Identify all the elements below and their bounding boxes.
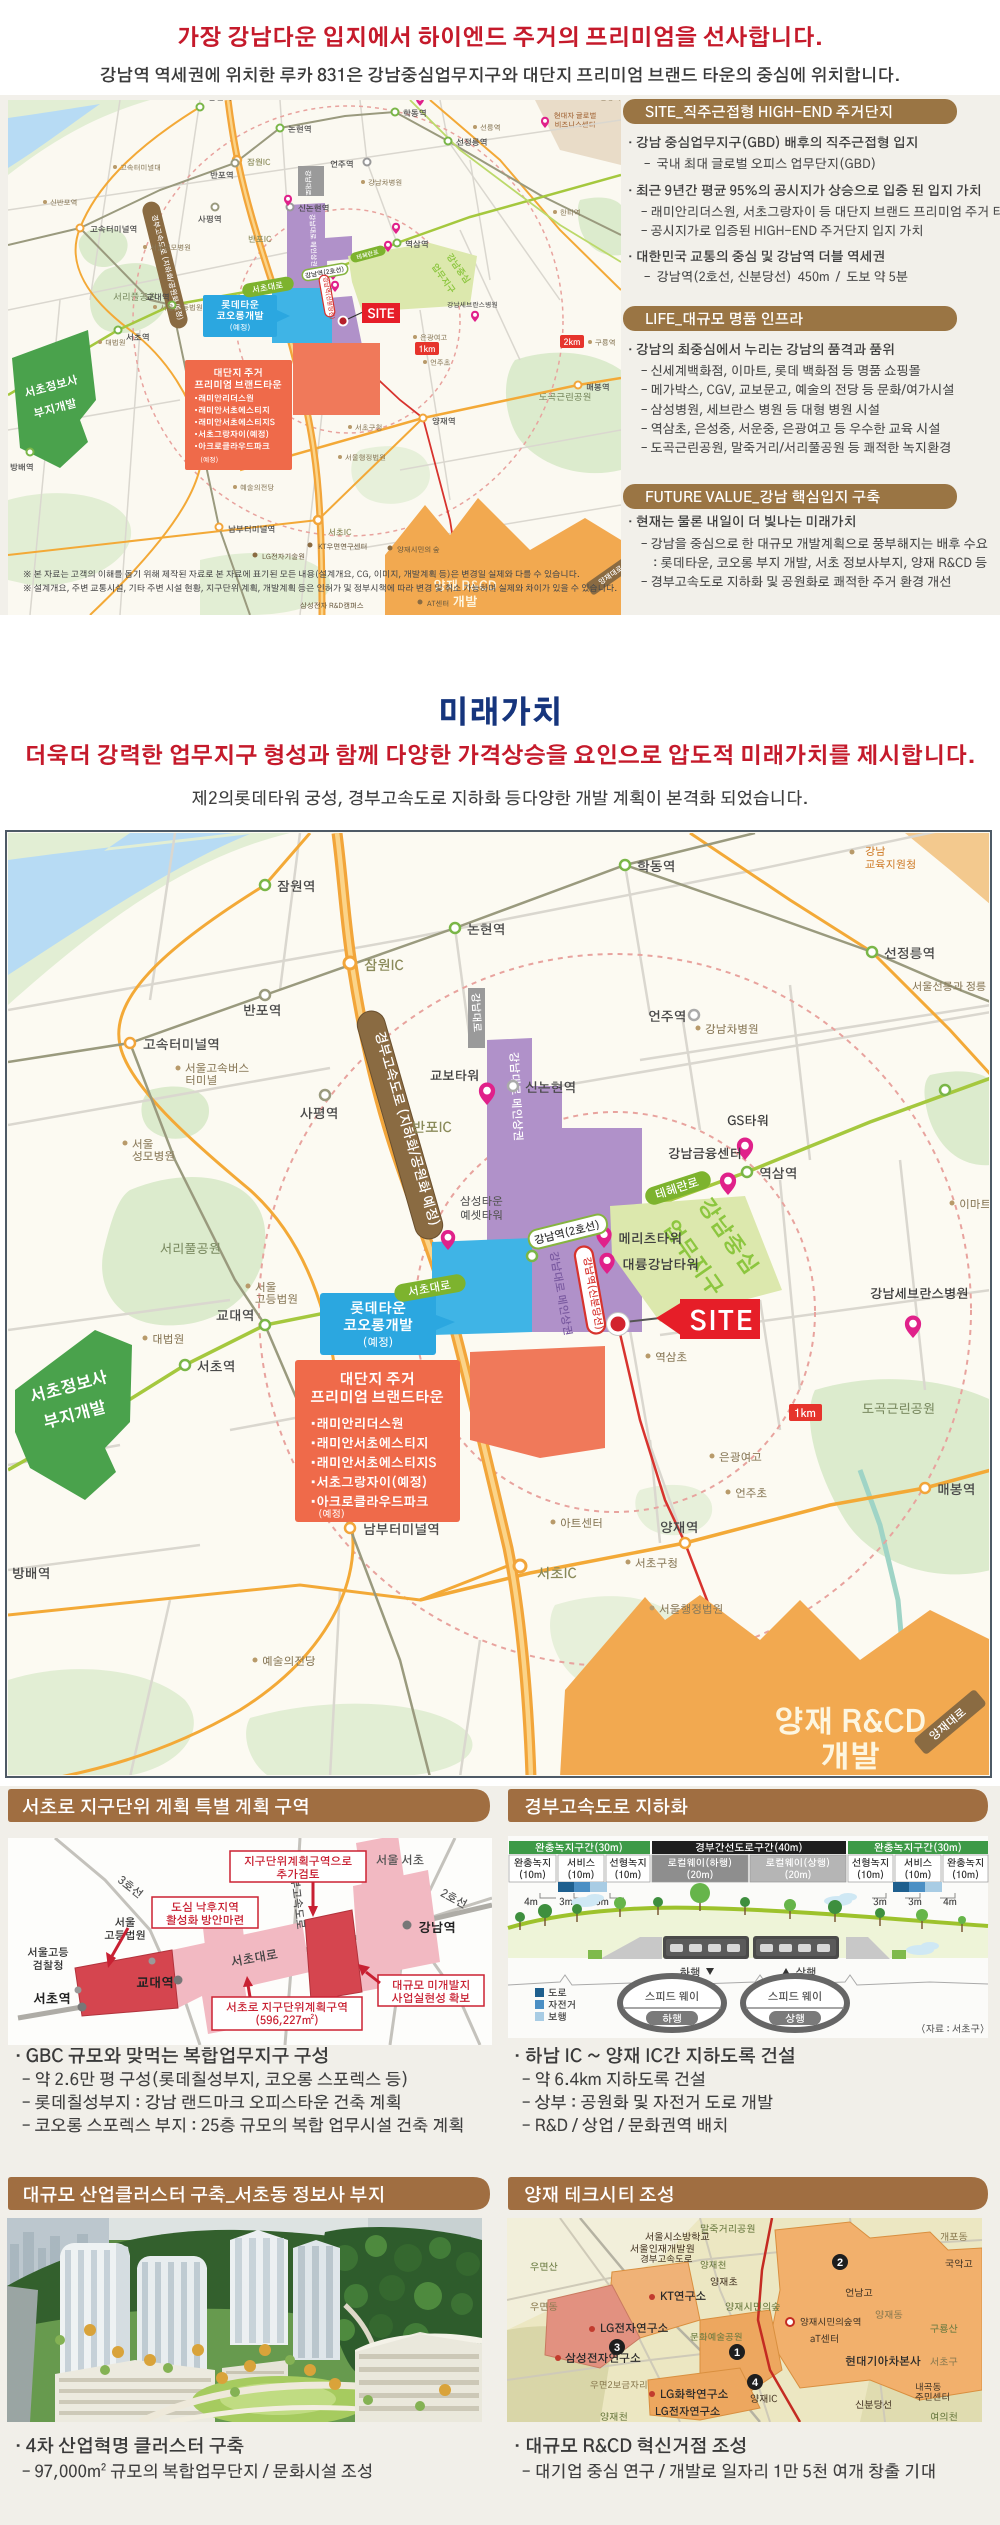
svg-text:4: 4 (752, 2377, 759, 2389)
svg-text:1: 1 (734, 2347, 740, 2359)
svg-text:2: 2 (837, 2257, 843, 2269)
svg-text:3: 3 (614, 2342, 620, 2354)
